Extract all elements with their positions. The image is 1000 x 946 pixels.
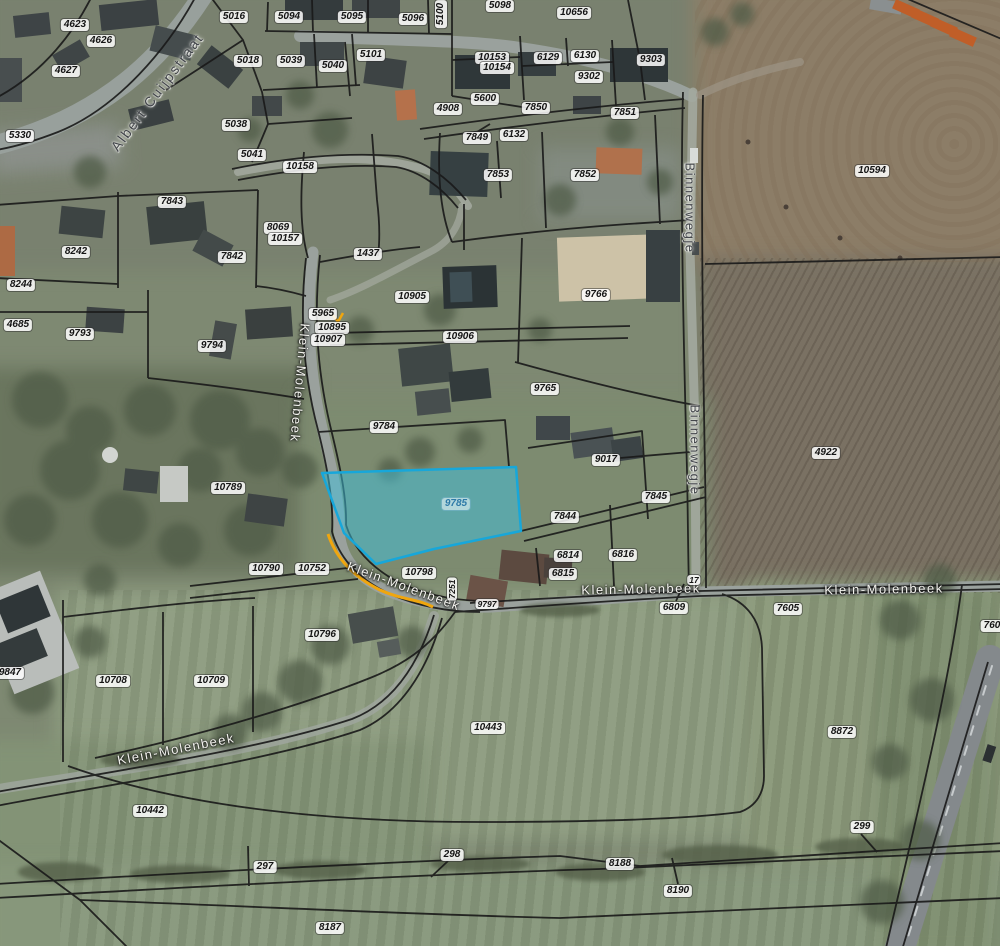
parcel-label-6814: 6814 <box>554 550 582 562</box>
parcel-label-10789: 10789 <box>211 482 245 494</box>
street-label-klein-molenbeek: Klein-Molenbeek <box>581 580 701 597</box>
street-label-binnenwegje: Binnenwegje <box>683 163 698 254</box>
parcel-label-9797: 9797 <box>476 599 499 609</box>
parcel-label-4685: 4685 <box>4 319 32 331</box>
parcel-label-10594: 10594 <box>855 165 889 177</box>
track-to-field <box>700 62 800 95</box>
parcel-label-7605: 7605 <box>774 603 802 615</box>
parcel-label-7844: 7844 <box>551 511 579 523</box>
parcel-label-7251: 7251 <box>447 578 457 601</box>
parcel-label-9847: 9847 <box>0 667 24 679</box>
parcel-label-10752: 10752 <box>295 563 329 575</box>
parcel-label-8244: 8244 <box>7 279 35 291</box>
parcel-label-299: 299 <box>851 821 874 833</box>
parcel-label-6815: 6815 <box>549 568 577 580</box>
parcel-label-4623: 4623 <box>61 19 89 31</box>
parcel-label-10895: 10895 <box>315 322 349 334</box>
parcel-label-10906: 10906 <box>443 331 477 343</box>
parcel-label-8187: 8187 <box>316 922 344 934</box>
parcel-label-7852: 7852 <box>571 169 599 181</box>
parcel-label-10907: 10907 <box>311 334 345 346</box>
brown-roof-house <box>499 550 550 585</box>
hedge-row <box>18 603 905 883</box>
satellite-dish <box>102 447 118 463</box>
parcel-label-10905: 10905 <box>395 291 429 303</box>
car <box>982 744 996 763</box>
parcel-label-9784: 9784 <box>370 421 398 433</box>
parcel-label-9017: 9017 <box>592 454 620 466</box>
highlighted-parcel-9785[interactable] <box>322 467 521 564</box>
parcel-label-4626: 4626 <box>87 35 115 47</box>
parcel-label-10709: 10709 <box>194 675 228 687</box>
orange-roof-building <box>596 147 643 175</box>
parcel-label-10157: 10157 <box>268 233 302 245</box>
parcel-label-10158: 10158 <box>283 161 317 173</box>
parcel-label-9794: 9794 <box>198 340 226 352</box>
parcel-label-5330: 5330 <box>6 130 34 142</box>
parcel-label-7845: 7845 <box>642 491 670 503</box>
parcel-label-4922: 4922 <box>812 447 840 459</box>
driveway-10905 <box>330 206 462 300</box>
parcel-label-5094: 5094 <box>275 11 303 23</box>
parcel-label-10798: 10798 <box>402 567 436 579</box>
parcel-label-5965: 5965 <box>309 308 337 320</box>
white-roof-building <box>160 466 188 502</box>
parcel-label-5038: 5038 <box>222 119 250 131</box>
parcel-label-5098: 5098 <box>486 0 514 12</box>
parcel-label-10796: 10796 <box>305 629 339 641</box>
aerial-cadastral-map[interactable]: 4623462646275330501650945095509651005098… <box>0 0 1000 946</box>
parcel-label-5041: 5041 <box>238 149 266 161</box>
parcel-label-8872: 8872 <box>828 726 856 738</box>
parcel-label-10442: 10442 <box>133 805 167 817</box>
parcel-label-10656: 10656 <box>557 7 591 19</box>
parcel-label-5600: 5600 <box>471 93 499 105</box>
parcel-label-9766: 9766 <box>582 289 610 301</box>
parcel-label-4908: 4908 <box>434 103 462 115</box>
parcel-label-7843: 7843 <box>158 196 186 208</box>
parcel-label-9302: 9302 <box>575 71 603 83</box>
orange-machinery <box>949 27 977 47</box>
parcel-label-6129: 6129 <box>534 52 562 64</box>
parcel-label-10708: 10708 <box>96 675 130 687</box>
parcel-label-9765: 9765 <box>531 383 559 395</box>
car <box>690 148 698 163</box>
parcel-label-10790: 10790 <box>249 563 283 575</box>
parcel-label-6816: 6816 <box>609 549 637 561</box>
parcel-label-7842: 7842 <box>218 251 246 263</box>
parcel-label-7849: 7849 <box>463 132 491 144</box>
parcel-label-4627: 4627 <box>52 65 80 77</box>
parcel-label-760: 760 <box>981 620 1000 632</box>
street-label-binnenwegje: Binnenwegje <box>688 405 703 496</box>
parcel-label-8242: 8242 <box>62 246 90 258</box>
parcel-label-7851: 7851 <box>611 107 639 119</box>
parcel-label-5100: 5100 <box>435 0 447 28</box>
parcel-label-5018: 5018 <box>234 55 262 67</box>
parcel-label-6130: 6130 <box>571 50 599 62</box>
parcel-label-17: 17 <box>687 575 700 585</box>
parcel-label-5016: 5016 <box>220 11 248 23</box>
parcel-label-8190: 8190 <box>664 885 692 897</box>
parcel-label-5040: 5040 <box>319 60 347 72</box>
parcel-label-297: 297 <box>254 861 277 873</box>
parcel-label-6809: 6809 <box>660 602 688 614</box>
parcel-label-9303: 9303 <box>637 54 665 66</box>
parcel-label-10154: 10154 <box>480 62 514 74</box>
parcel-label-8188: 8188 <box>606 858 634 870</box>
parcel-label-9785: 9785 <box>442 498 470 510</box>
parcel-label-298: 298 <box>441 849 464 861</box>
parcel-label-10443: 10443 <box>471 722 505 734</box>
parcel-label-5095: 5095 <box>338 11 366 23</box>
parcel-label-7850: 7850 <box>522 102 550 114</box>
parcel-label-1437: 1437 <box>354 248 382 260</box>
parcel-label-5101: 5101 <box>357 49 385 61</box>
parcel-label-5039: 5039 <box>277 55 305 67</box>
parcel-label-7853: 7853 <box>484 169 512 181</box>
parcel-label-6132: 6132 <box>500 129 528 141</box>
orange-roof-building <box>0 226 15 276</box>
parcel-label-9793: 9793 <box>66 328 94 340</box>
parcel-label-5096: 5096 <box>399 13 427 25</box>
orange-roof-building <box>395 89 417 120</box>
street-label-klein-molenbeek: Klein-Molenbeek <box>824 580 944 597</box>
